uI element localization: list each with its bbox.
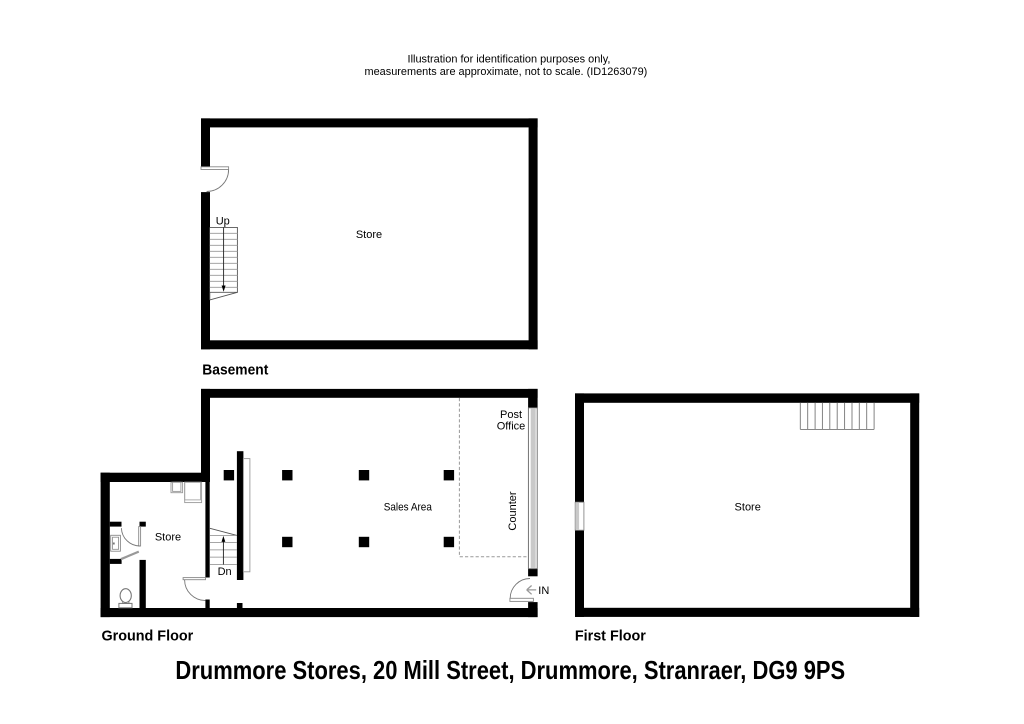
svg-text:Store: Store	[155, 532, 181, 544]
svg-text:Sales Area: Sales Area	[384, 502, 433, 514]
svg-text:Basement: Basement	[202, 361, 268, 378]
svg-text:First Floor: First Floor	[575, 627, 646, 644]
svg-text:Office: Office	[497, 421, 526, 433]
svg-text:Drummore Stores, 20 Mill Stree: Drummore Stores, 20 Mill Street, Drummor…	[175, 655, 845, 685]
svg-text:measurements are approximate,: measurements are approximate, not to sca…	[365, 66, 648, 78]
svg-text:Ground Floor: Ground Floor	[102, 627, 194, 644]
svg-text:Dn: Dn	[218, 566, 232, 578]
svg-text:Illustration for identificatio: Illustration for identification purposes…	[408, 53, 611, 65]
svg-text:Up: Up	[216, 216, 230, 228]
svg-text:Store: Store	[356, 229, 382, 241]
svg-text:IN: IN	[538, 585, 549, 597]
svg-text:Store: Store	[735, 501, 761, 513]
svg-text:Counter: Counter	[507, 491, 519, 530]
svg-text:Post: Post	[500, 409, 522, 421]
